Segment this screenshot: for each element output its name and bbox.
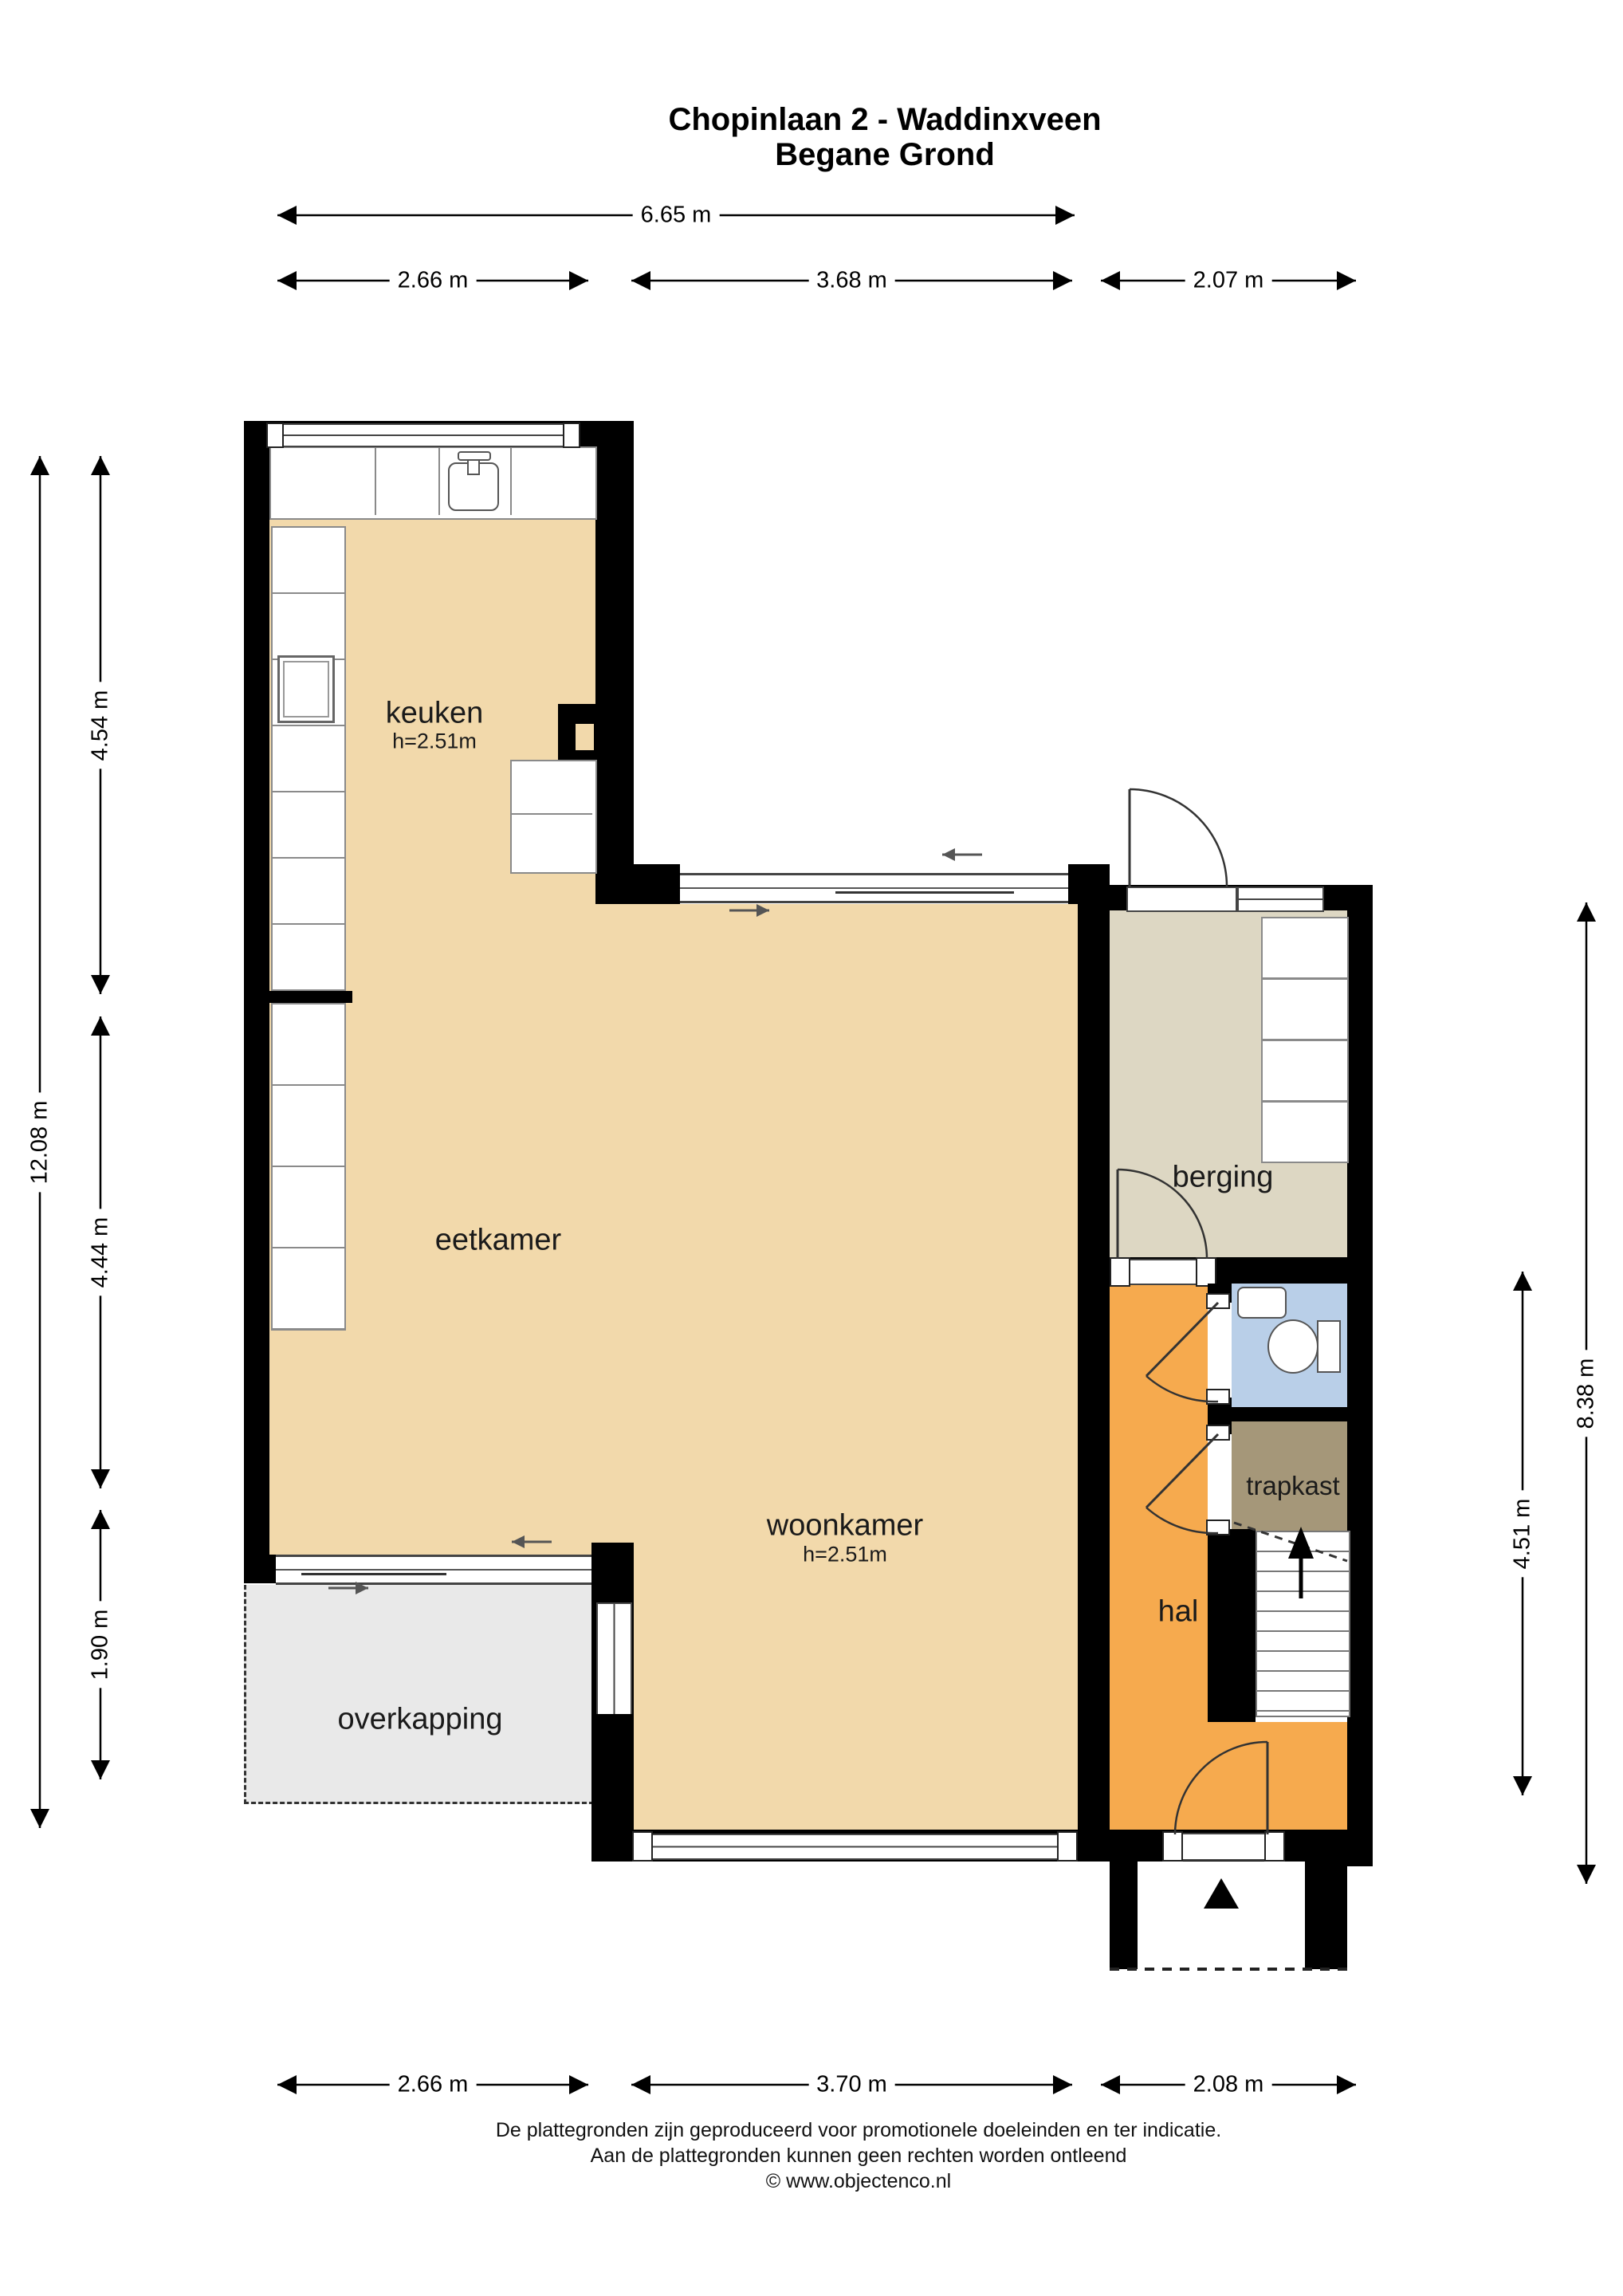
room-label-keuken: keuken [386, 697, 484, 731]
room-label-trapkast: trapkast [1246, 1471, 1339, 1501]
dimension-left-middle: 4.44 m [86, 1015, 115, 1490]
dimension-left-total: 12.08 m [26, 454, 54, 1830]
dimension-top-left: 2.66 m [276, 266, 590, 295]
room-label-woonkamer: woonkamer [767, 1509, 923, 1543]
dimension-bottom-mid: 3.70 m [630, 2070, 1074, 2099]
dimension-left-upper: 4.54 m [86, 454, 115, 996]
door-arc-berging-top [1130, 789, 1227, 887]
plan-linework [0, 0, 1623, 2296]
dimension-right-total: 8.38 m [1572, 901, 1601, 1885]
door-arc-front [1175, 1742, 1267, 1834]
slide-arrows [328, 848, 982, 1594]
room-label-hal: hal [1158, 1595, 1199, 1630]
dimension-top-total: 6.65 m [276, 201, 1076, 230]
dimension-top-mid: 3.68 m [630, 266, 1074, 295]
dimension-bottom-left: 2.66 m [276, 2070, 590, 2099]
footer-copyright: © www.objectenco.nl [766, 2170, 951, 2193]
dimension-right-inner: 4.51 m [1508, 1270, 1537, 1797]
door-arc-trapkast [1146, 1434, 1218, 1533]
floorplan-page: Chopinlaan 2 - Waddinxveen Begane Grond [0, 0, 1623, 2296]
stairs-up-arrow-icon [1288, 1527, 1314, 1598]
room-label-berging: berging [1173, 1161, 1274, 1195]
dimension-top-right: 2.07 m [1099, 266, 1358, 295]
footer-disclaimer-1: De plattegronden zijn geproduceerd voor … [496, 2119, 1221, 2142]
dimension-left-lower: 1.90 m [86, 1508, 115, 1781]
entrance-marker-icon [1204, 1878, 1239, 1909]
room-label-eetkamer: eetkamer [435, 1224, 561, 1258]
room-sublabel-keuken: h=2.51m [392, 729, 477, 754]
footer-disclaimer-2: Aan de plattegronden kunnen geen rechten… [591, 2145, 1127, 2168]
dimension-bottom-right: 2.08 m [1099, 2070, 1358, 2099]
room-sublabel-woonkamer: h=2.51m [803, 1543, 887, 1567]
door-arc-toilet [1146, 1303, 1218, 1402]
room-label-overkapping: overkapping [337, 1703, 502, 1737]
